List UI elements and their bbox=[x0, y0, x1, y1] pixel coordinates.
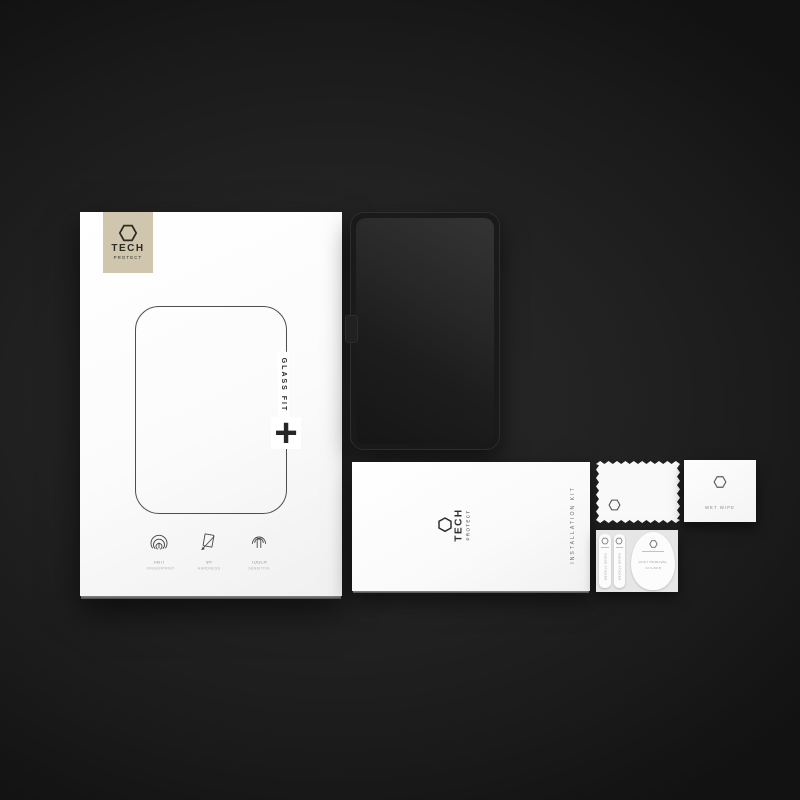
hardness-icon bbox=[198, 531, 220, 553]
wipe-sachet bbox=[596, 461, 680, 523]
installation-kit-label: INSTALLATION KIT bbox=[570, 486, 575, 564]
brand-word-protect: PROTECT bbox=[467, 510, 472, 541]
brand-word-protect: PROTECT bbox=[114, 256, 143, 260]
feature-hardness: 9H HARDNESS bbox=[189, 531, 229, 573]
hexagon-icon bbox=[713, 476, 727, 489]
dust-removal-sticker: DUST REMOVAL STICKER bbox=[631, 532, 675, 590]
plus-mark: + bbox=[271, 417, 301, 449]
feature-anti-fingerprint: ANTI FINGERPRINT bbox=[139, 531, 179, 573]
divider bbox=[601, 547, 609, 548]
divider bbox=[616, 547, 624, 548]
dust-sticker-label-line1: DUST REMOVAL bbox=[639, 561, 667, 564]
divider bbox=[642, 551, 664, 552]
dust-sticker-label-line2: STICKER bbox=[645, 567, 661, 570]
tempered-glass-tablet bbox=[350, 212, 500, 450]
product-box: TECH PROTECT GLASS FIT + ANTI FINGERPRIN… bbox=[80, 212, 342, 596]
feature-icons-row: ANTI FINGERPRINT 9H HARDNESS TOUCH bbox=[80, 531, 338, 573]
tablet-outline-drawing bbox=[135, 306, 287, 514]
guide-sticker-strip: GUIDE STICKER bbox=[599, 534, 611, 588]
fingerprint-icon bbox=[148, 531, 170, 553]
guide-sticker-label: GUIDE STICKER bbox=[603, 553, 606, 580]
guide-sticker-label: GUIDE STICKER bbox=[618, 553, 621, 580]
glass-surface bbox=[356, 218, 494, 444]
wet-wipe-label: WET WIPE bbox=[695, 506, 745, 510]
brand-logo-square: TECH PROTECT bbox=[103, 212, 153, 273]
hexagon-icon bbox=[615, 538, 623, 545]
camera-cutout-tab bbox=[345, 315, 358, 343]
feature-touch-sensitive: TOUCH SENSITIVE bbox=[239, 531, 279, 573]
product-photo: TECH PROTECT GLASS FIT + ANTI FINGERPRIN… bbox=[0, 0, 800, 800]
touch-icon bbox=[248, 531, 270, 553]
hexagon-icon bbox=[608, 499, 621, 511]
wet-wipe-packet: WET WIPE bbox=[684, 460, 756, 522]
product-line-label: GLASS FIT bbox=[277, 352, 295, 419]
sticker-sheet: GUIDE STICKER GUIDE STICKER DUST REMOVAL… bbox=[596, 530, 678, 592]
brand-word-tech: TECH bbox=[455, 508, 465, 541]
installation-kit-envelope: TECH PROTECT INSTALLATION KIT bbox=[352, 462, 590, 591]
hexagon-icon bbox=[649, 540, 658, 548]
hexagon-icon bbox=[601, 538, 609, 545]
brand-word-tech: TECH bbox=[111, 244, 144, 254]
hexagon-icon bbox=[438, 517, 453, 533]
hexagon-icon bbox=[118, 224, 138, 242]
brand-logo-rotated: TECH PROTECT bbox=[438, 504, 473, 545]
guide-sticker-strip: GUIDE STICKER bbox=[614, 534, 626, 588]
